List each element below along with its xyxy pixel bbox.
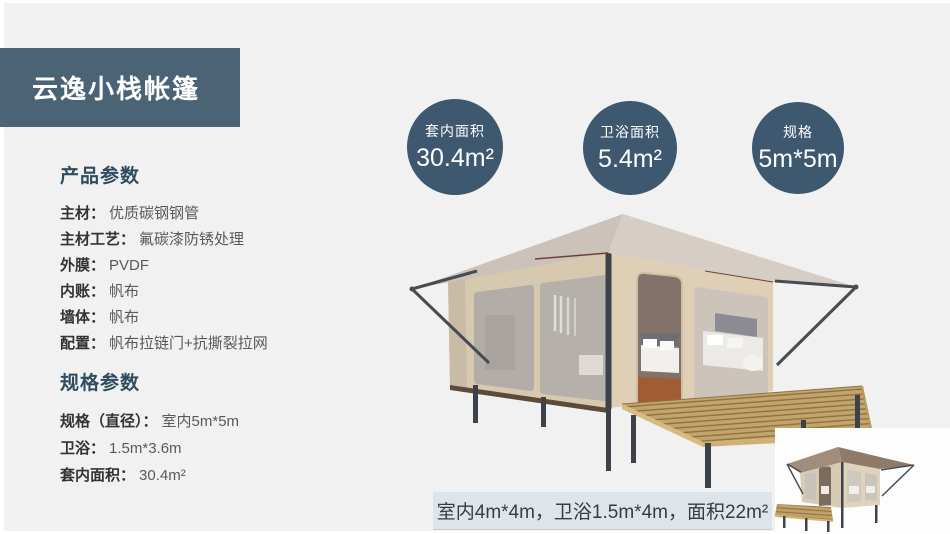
- slide: 云逸小栈帐篷 产品参数 主材：优质碳钢钢管 主材工艺：氟碳漆防锈处理 外膜：PV…: [0, 0, 950, 534]
- spec-params-heading: 规格参数: [60, 368, 400, 395]
- corner-post: [606, 249, 612, 409]
- spec-row-bathroom: 卫浴：1.5m*3.6m: [60, 435, 400, 462]
- param-row-config: 配置：帆布拉链门+抗撕裂拉网: [60, 331, 400, 357]
- stat-circle-inner-area: 套内面积 30.4m²: [407, 99, 503, 195]
- param-row-outer-membrane: 外膜：PVDF: [60, 253, 400, 279]
- dimension-caption-text: 室内4m*4m，卫浴1.5m*4m，面积22m²: [437, 497, 769, 524]
- spec-params-section: 规格参数 规格（直径）：室内5m*5m 卫浴：1.5m*3.6m 套内面积：30…: [60, 368, 400, 489]
- spec-row-size: 规格（直径）：室内5m*5m: [60, 408, 400, 435]
- dimension-caption: 室内4m*4m，卫浴1.5m*4m，面积22m²: [433, 492, 772, 530]
- stat-circle-spec: 规格 5m*5m: [752, 102, 844, 194]
- spec-row-inner-area: 套内面积：30.4m²: [60, 462, 400, 489]
- product-title: 云逸小栈帐篷: [32, 69, 200, 106]
- param-row-inner-tent: 内账：帆布: [60, 279, 400, 305]
- param-row-wall: 墙体：帆布: [60, 305, 400, 331]
- left-window-2: [543, 278, 605, 398]
- front-window: [697, 290, 765, 405]
- tent-door: [637, 273, 682, 405]
- product-params-heading: 产品参数: [60, 161, 400, 188]
- tent-thumbnail-image[interactable]: [775, 428, 950, 534]
- product-title-block: 云逸小栈帐篷: [0, 48, 240, 127]
- param-row-material: 主材：优质碳钢钢管: [60, 201, 400, 227]
- stat-circle-bathroom-area: 卫浴面积 5.4m²: [583, 101, 677, 195]
- param-row-material-craft: 主材工艺：氟碳漆防锈处理: [60, 227, 400, 253]
- product-params-section: 产品参数 主材：优质碳钢钢管 主材工艺：氟碳漆防锈处理 外膜：PVDF 内账：帆…: [60, 161, 400, 357]
